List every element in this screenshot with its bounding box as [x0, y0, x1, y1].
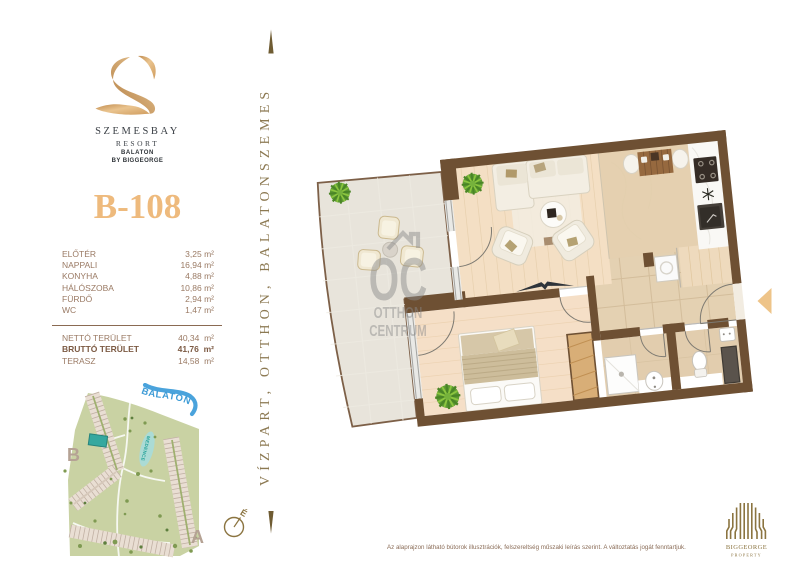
svg-text:CENTRUM: CENTRUM: [369, 321, 427, 339]
svg-text:É: É: [238, 507, 248, 519]
svg-text:BIGGEORGE: BIGGEORGE: [726, 544, 767, 551]
svg-text:PROPERTY: PROPERTY: [731, 553, 762, 558]
svg-text:OTTHON: OTTHON: [374, 303, 423, 321]
svg-text:A: A: [191, 527, 204, 547]
svg-text:B: B: [67, 445, 80, 465]
